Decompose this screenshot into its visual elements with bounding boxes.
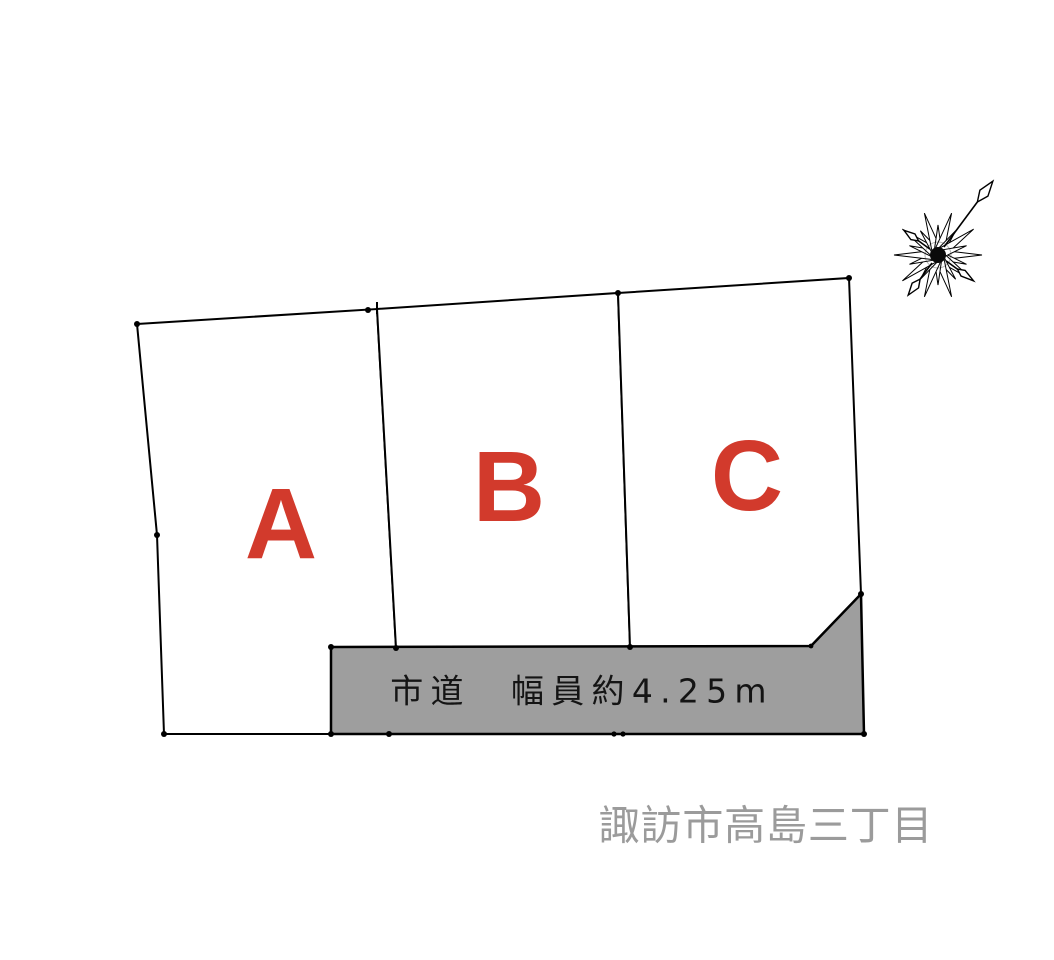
road-label: 市道 幅員約4.25m xyxy=(390,675,773,708)
plot-b-label: B xyxy=(473,437,545,537)
address-label: 諏訪市高島三丁目 xyxy=(599,806,934,847)
compass-rose-icon xyxy=(894,178,997,298)
plot-a-label: A xyxy=(245,474,317,574)
site-plan: A B C 市道 幅員約4.25m 諏訪市高島三丁目 xyxy=(0,0,1054,960)
compass-center xyxy=(930,247,946,263)
plot-c-label: C xyxy=(711,426,783,526)
